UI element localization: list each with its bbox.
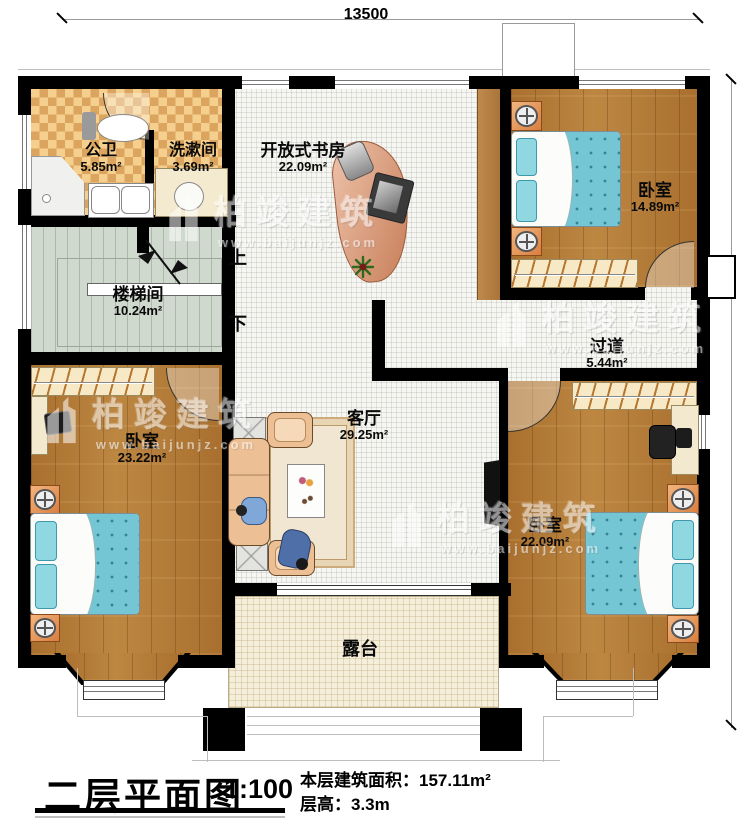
wall-tv [484, 460, 500, 526]
ground-outline [633, 668, 634, 716]
floor-height-row: 层高：3.3m [300, 790, 390, 815]
terrace-post-right [480, 708, 522, 751]
plant-icon [350, 254, 376, 280]
window-top-2 [333, 76, 471, 89]
bed-left [30, 513, 140, 615]
wall-bedroom-tr-bottom [499, 287, 645, 300]
nightstand [30, 614, 60, 642]
window-top-3 [577, 76, 687, 89]
room-label-bedroom-left: 卧室 23.22m² [118, 433, 166, 465]
person-head [236, 505, 247, 516]
desk-chair [649, 425, 676, 459]
room-label-washroom: 洗漱间 3.69m² [169, 143, 217, 174]
nightstand [511, 101, 542, 131]
window-top-1 [240, 76, 291, 89]
stairs-down-label: 下 [229, 310, 247, 336]
closet-topright [511, 259, 638, 288]
wall-stair-bottom [18, 352, 235, 365]
floor-area-value: 157.11m² [419, 771, 491, 790]
terrace-railing [247, 725, 480, 726]
ground-outline [543, 716, 544, 762]
nightstand [667, 615, 699, 643]
floor-area-row: 本层建筑面积：157.11m² [300, 766, 491, 791]
wall-bottom-right-b [672, 655, 710, 668]
room-label-bedroom-topright: 卧室 14.89m² [631, 182, 679, 214]
bed-topright [511, 131, 621, 227]
plan-scale: 1:100 [224, 774, 293, 805]
ground-outline [207, 716, 208, 762]
washroom-sink [174, 182, 204, 211]
terrace-post-left [203, 708, 245, 751]
roof-outline-box [502, 23, 575, 77]
wall-bedroom-br-top-b [560, 368, 697, 381]
shower-drain [42, 194, 51, 203]
right-dimension-line [731, 80, 732, 728]
nightstand [667, 484, 699, 514]
toilet-tank [82, 112, 96, 140]
wall-bedroom-tr-left [499, 89, 511, 300]
room-label-terrace: 露台 [342, 640, 378, 659]
room-label-corridor: 过道 5.44m² [586, 338, 627, 370]
vanity-sink-1 [91, 186, 120, 214]
room-label-study: 开放式书房 22.09m² [261, 142, 346, 174]
vanity-sink-2 [121, 186, 150, 214]
floor-height-label: 层高： [300, 795, 351, 814]
room-label-stairwell: 楼梯间 10.24m² [113, 286, 164, 318]
room-label-bedroom-bottomright: 卧室 22.09m² [521, 517, 569, 549]
dimension-tick [56, 12, 67, 23]
top-dimension-label: 13500 [344, 6, 389, 24]
room-label-living: 客厅 29.25m² [340, 410, 388, 442]
ground-outline [192, 760, 560, 761]
coffee-table [287, 464, 325, 518]
dimension-tick [692, 12, 703, 23]
bookshelf-strip [477, 89, 500, 300]
terrace-railing [247, 716, 480, 717]
floor-height-value: 3.3m [351, 795, 390, 814]
window-left-2 [18, 223, 31, 331]
wall-living-bottom-b [471, 583, 511, 596]
wall-bedroom-br-left [499, 381, 508, 668]
wall-living-bottom-a [225, 583, 277, 596]
tv-left-bedroom [44, 410, 73, 435]
wall-bottom-left-a [18, 655, 66, 668]
top-dimension-line [62, 19, 700, 20]
bay-window-left [83, 680, 165, 700]
room-label-bathroom: 公卫 5.85m² [80, 143, 121, 174]
ground-outline [543, 716, 633, 717]
child-head [296, 558, 308, 570]
window-left-1 [18, 113, 31, 191]
right-wall-niche [706, 255, 736, 299]
sofa [228, 438, 270, 546]
ground-outline [77, 668, 78, 716]
bed-bottomright [585, 512, 699, 615]
title-underline-2 [35, 816, 285, 818]
terrace-sliding-door [277, 585, 471, 596]
title-underline [35, 808, 285, 813]
bay-window-right [556, 680, 658, 700]
ground-outline [77, 716, 207, 717]
stairs-up-label: 上 [229, 244, 247, 270]
armchair-top [267, 412, 313, 448]
nightstand [511, 227, 542, 256]
nightstand [30, 485, 60, 514]
toilet-icon [97, 114, 149, 142]
terrace-railing [247, 734, 480, 735]
floor-plan-page: { "dimensions": { "width_mm": "13500", "… [0, 0, 750, 834]
wall-bedroom-br-top-a [372, 368, 508, 381]
closet-left [31, 367, 155, 396]
laptop-icon [676, 428, 692, 448]
eave-line [18, 69, 710, 70]
floor-area-label: 本层建筑面积： [300, 771, 419, 790]
